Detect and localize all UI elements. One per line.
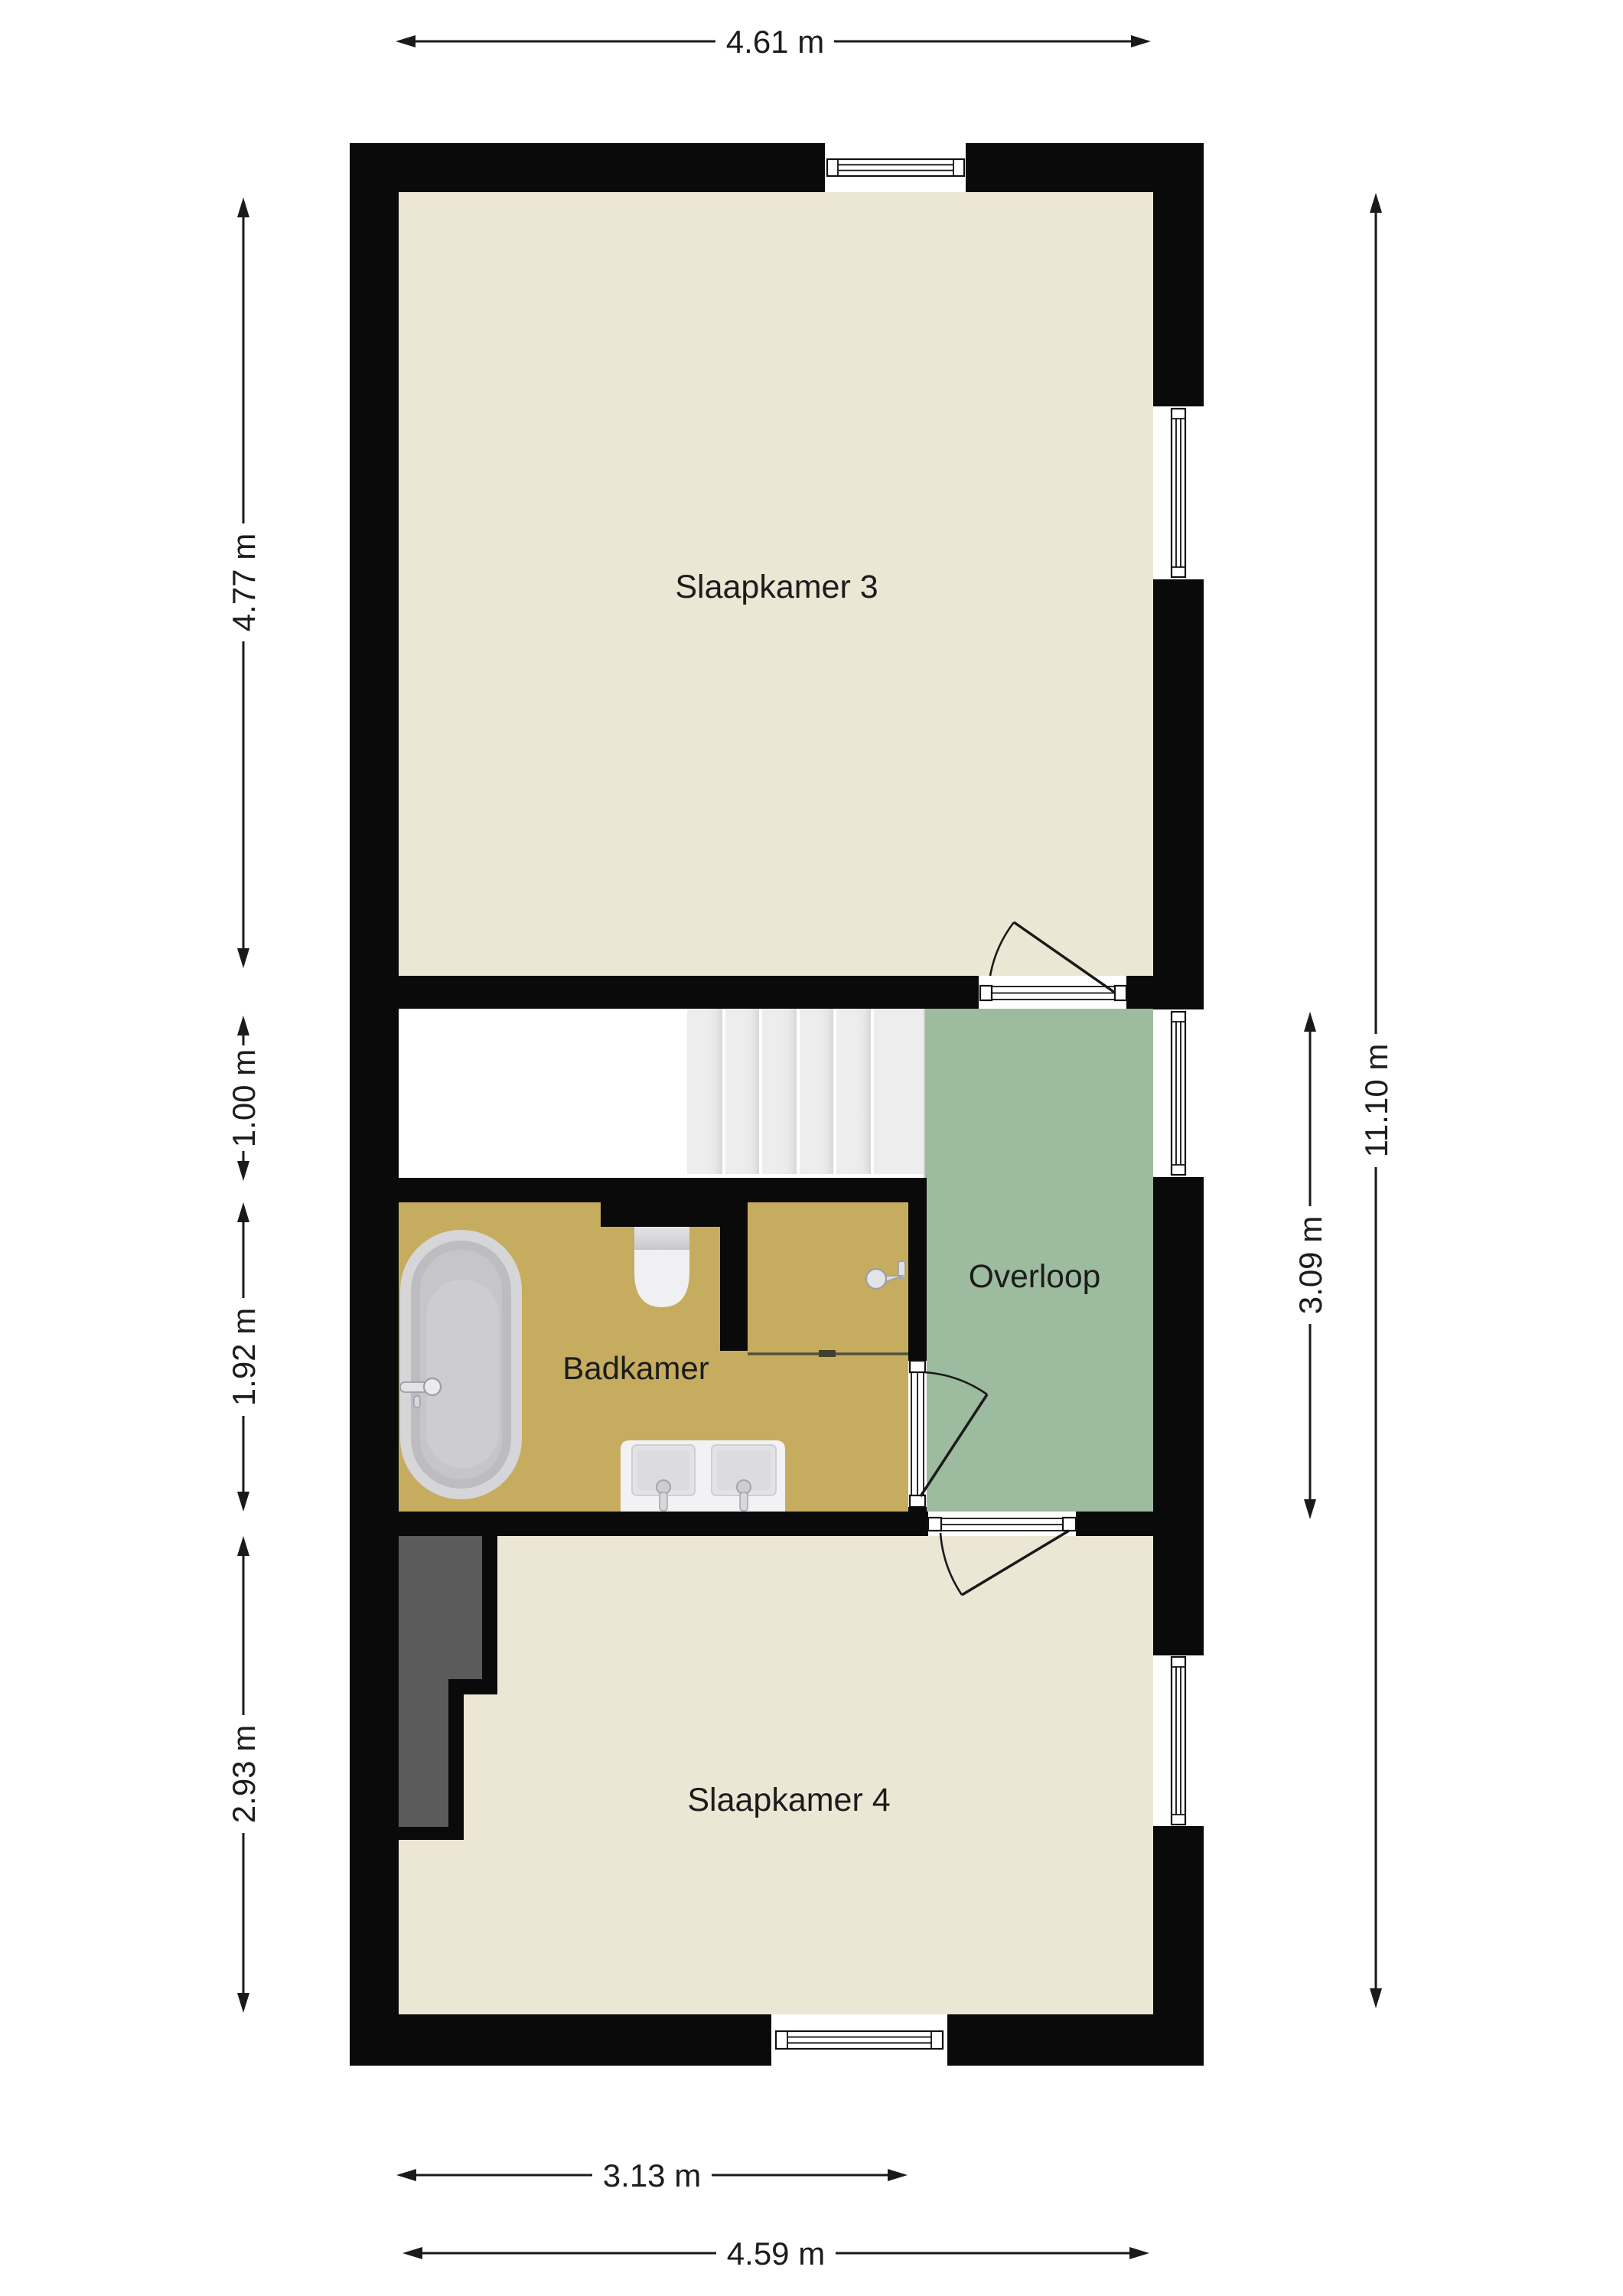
svg-text:1.00 m: 1.00 m (226, 1049, 262, 1147)
svg-text:4.59 m: 4.59 m (727, 2236, 825, 2272)
svg-text:4.61 m: 4.61 m (726, 24, 824, 60)
svg-text:Overloop: Overloop (969, 1259, 1100, 1295)
svg-text:Slaapkamer 3: Slaapkamer 3 (675, 569, 878, 605)
svg-text:3.13 m: 3.13 m (603, 2157, 701, 2193)
svg-text:4.77 m: 4.77 m (226, 533, 262, 631)
svg-text:Slaapkamer 4: Slaapkamer 4 (687, 1782, 890, 1818)
svg-text:2.93 m: 2.93 m (226, 1725, 262, 1823)
svg-text:1.92 m: 1.92 m (226, 1308, 262, 1406)
svg-text:11.10 m: 11.10 m (1358, 1044, 1394, 1158)
svg-text:3.09 m: 3.09 m (1292, 1216, 1328, 1314)
svg-text:Badkamer: Badkamer (562, 1350, 709, 1386)
